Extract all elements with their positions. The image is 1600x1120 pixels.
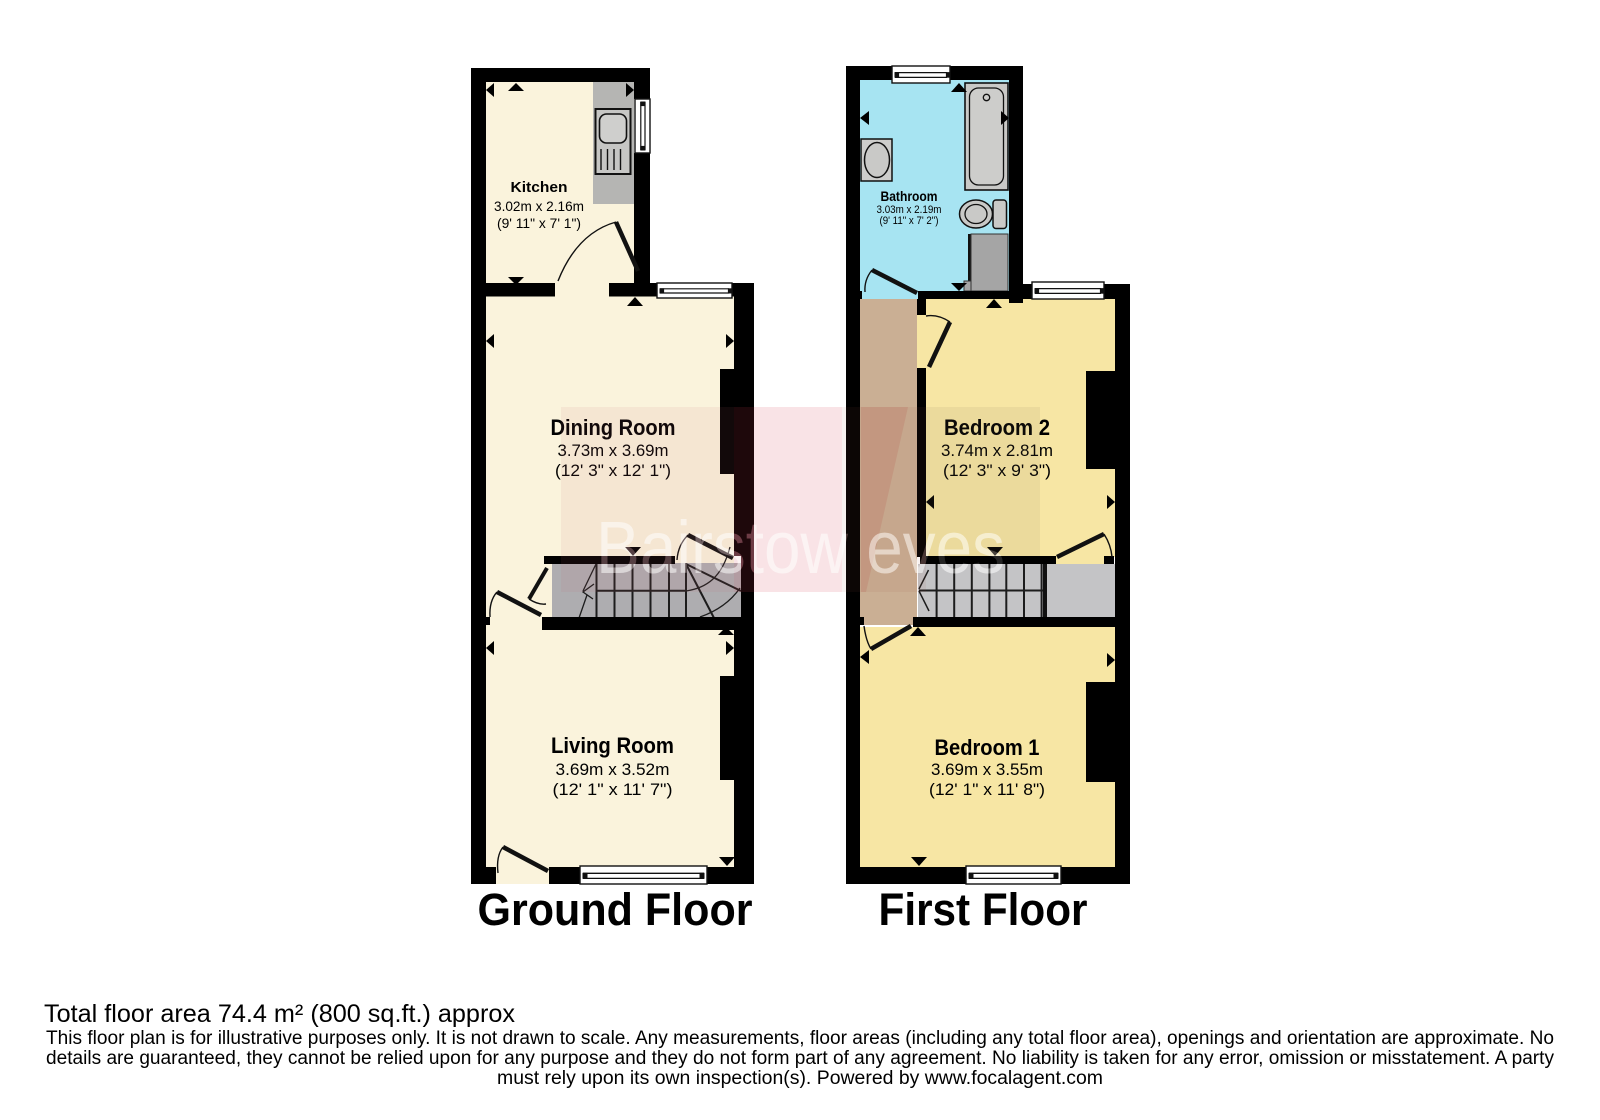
svg-text:Total floor area 74.4 m² (800: Total floor area 74.4 m² (800 sq.ft.) ap…: [44, 1000, 515, 1028]
svg-text:Kitchen: Kitchen: [511, 180, 568, 196]
svg-text:This floor plan is for illustr: This floor plan is for illustrative purp…: [46, 1028, 1554, 1049]
svg-text:(9' 11" x 7' 2"): (9' 11" x 7' 2"): [880, 215, 939, 227]
svg-text:Ground Floor: Ground Floor: [478, 884, 753, 935]
svg-text:must rely upon its own inspect: must rely upon its own inspection(s). Po…: [497, 1068, 1103, 1089]
svg-text:3.69m x 3.55m: 3.69m x 3.55m: [931, 761, 1043, 779]
svg-text:Bathroom: Bathroom: [881, 189, 938, 204]
svg-text:(12' 1" x 11' 7"): (12' 1" x 11' 7"): [553, 781, 673, 799]
svg-text:Bedroom 1: Bedroom 1: [935, 735, 1040, 760]
svg-text:3.69m x 3.52m: 3.69m x 3.52m: [556, 761, 670, 779]
svg-text:First Floor: First Floor: [879, 884, 1088, 935]
svg-text:(9' 11" x 7' 1"): (9' 11" x 7' 1"): [497, 215, 581, 231]
svg-text:Living Room: Living Room: [551, 733, 674, 758]
svg-text:details are guaranteed, they c: details are guaranteed, they cannot be r…: [46, 1048, 1554, 1069]
svg-text:Bairstow eves: Bairstow eves: [596, 506, 1005, 589]
svg-text:(12' 1" x 11' 8"): (12' 1" x 11' 8"): [929, 781, 1045, 799]
svg-text:3.02m x 2.16m: 3.02m x 2.16m: [494, 198, 584, 214]
